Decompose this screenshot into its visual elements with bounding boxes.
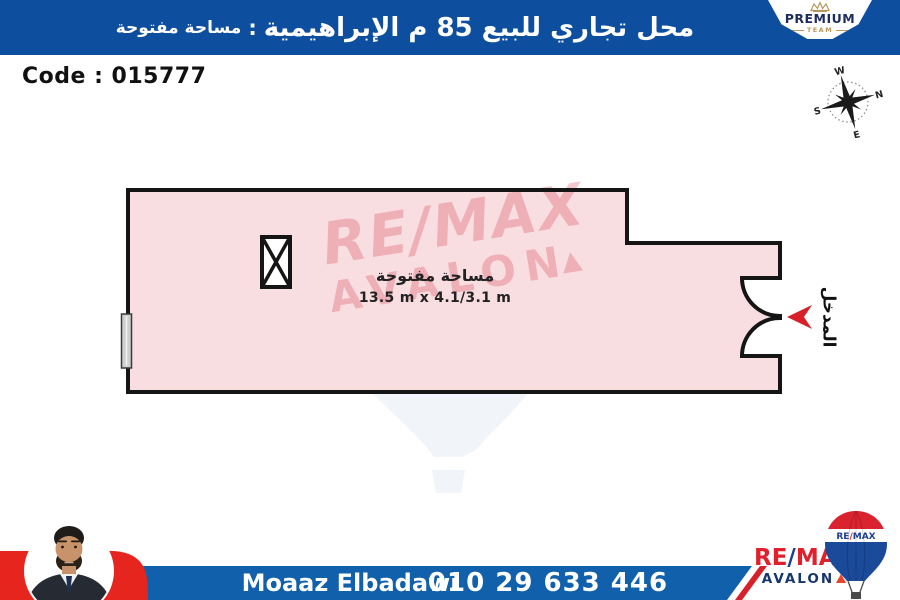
gold-line <box>836 30 849 31</box>
agent-phone: 010 29 633 446 <box>452 566 644 600</box>
balloon-watermark <box>340 222 554 493</box>
room-dimensions: 13.5 m x 4.1/3.1 m <box>330 290 540 306</box>
premium-label: PREMIUM <box>785 12 856 25</box>
balloon-re: RE <box>836 532 849 542</box>
wordmark-slash: / <box>787 545 795 571</box>
window-symbol <box>122 314 132 368</box>
entrance-label: المدخل <box>798 286 858 348</box>
wordmark-re: RE <box>754 545 787 571</box>
watermark-remax: RE/MAX <box>317 170 590 279</box>
balloon-band-text: RE/MAX <box>836 532 875 542</box>
premium-team-row: TEAM <box>791 26 849 34</box>
agent-name: Moaaz Elbadawi <box>246 567 454 599</box>
column-symbol <box>262 237 290 287</box>
compass-west: W <box>833 65 846 78</box>
entrance-label-text: المدخل <box>818 287 838 348</box>
room-label: مساحة مفتوحة <box>330 266 540 285</box>
team-label: TEAM <box>807 26 833 34</box>
compass-south: S <box>813 105 823 117</box>
agent-photo-block <box>0 500 210 600</box>
flyer-canvas: محل تجاري للبيع 85 م الإبراهيمية : مساحة… <box>0 0 900 600</box>
gold-line <box>791 30 804 31</box>
listing-title-subtitle: مساحة مفتوحة <box>116 18 242 38</box>
listing-title: محل تجاري للبيع 85 م الإبراهيمية : مساحة… <box>40 0 770 55</box>
balloon-max: MAX <box>853 532 876 542</box>
listing-title-main: محل تجاري للبيع 85 م الإبراهيمية <box>264 13 695 43</box>
listing-title-separator: : <box>248 16 256 40</box>
listing-code: Code : 015777 <box>22 64 206 89</box>
compass-north: N <box>874 89 885 102</box>
remax-balloon-icon: RE/MAX <box>818 508 894 600</box>
compass-rose-icon: W N E S <box>810 62 886 138</box>
compass-east: E <box>852 129 861 138</box>
